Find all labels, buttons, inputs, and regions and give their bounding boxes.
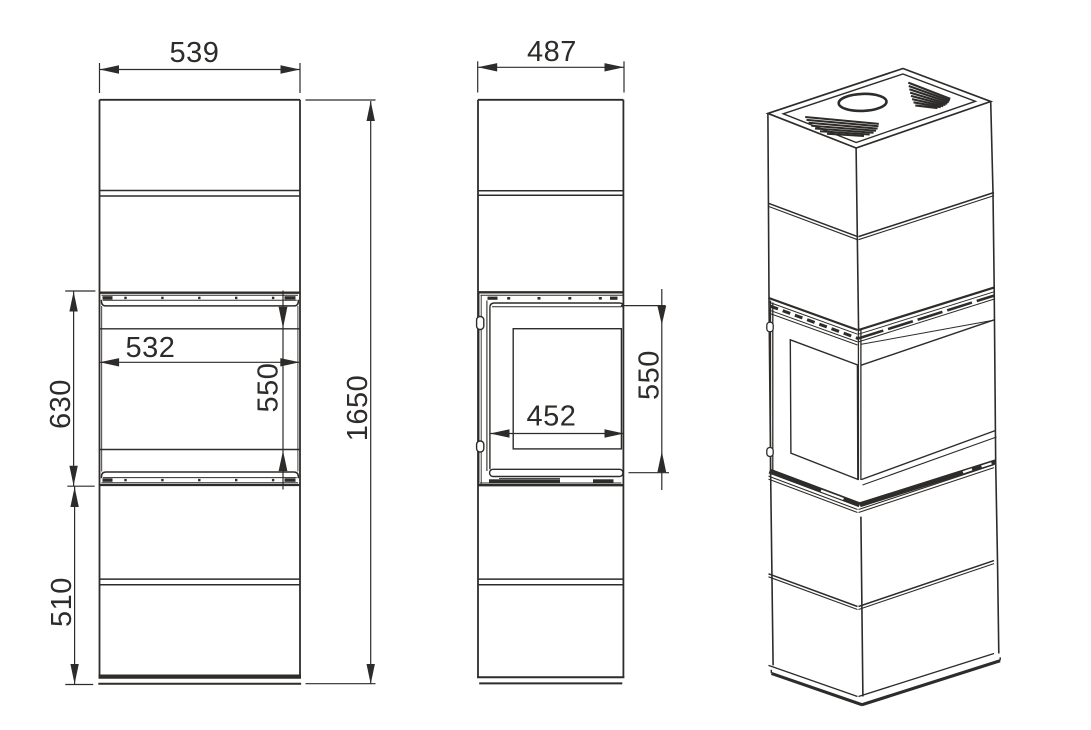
svg-text:532: 532 [126, 332, 176, 364]
svg-text:550: 550 [253, 363, 285, 413]
svg-text:539: 539 [170, 37, 220, 69]
svg-text:452: 452 [527, 401, 577, 433]
svg-text:550: 550 [634, 350, 666, 400]
svg-text:630: 630 [45, 379, 77, 429]
svg-text:510: 510 [46, 577, 78, 627]
svg-text:1650: 1650 [342, 375, 374, 442]
svg-text:487: 487 [527, 36, 577, 68]
